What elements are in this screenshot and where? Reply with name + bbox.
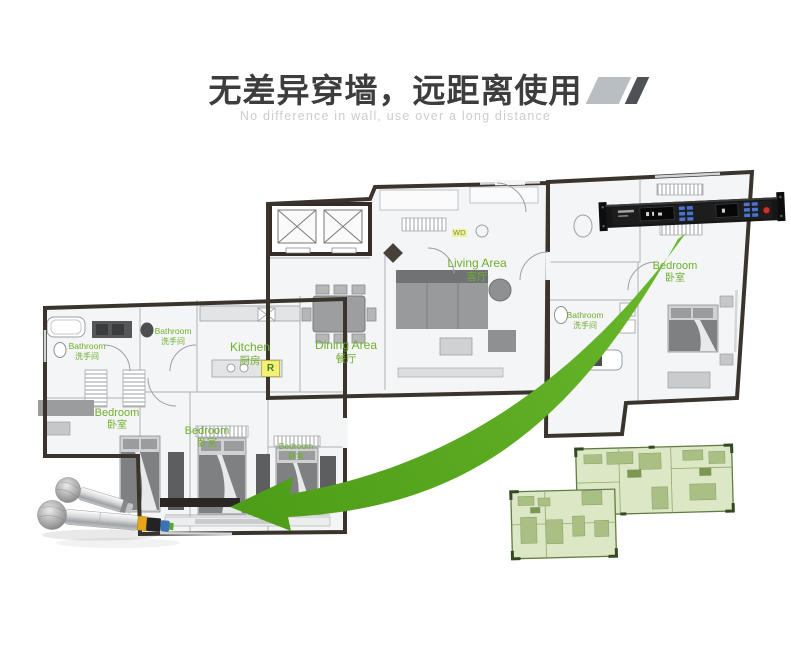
page-subtitle: No difference in wall, use over a long d… (0, 109, 791, 123)
receiver-power-led (763, 207, 770, 214)
receiver-display-a (640, 206, 675, 221)
mic-shadow (56, 538, 180, 548)
receiver-display-b (716, 204, 739, 218)
handheld-microphones (36, 474, 180, 548)
page-title: 无差异穿墙，远距离使用 (0, 64, 791, 112)
wireless-receiver (598, 192, 785, 231)
marketing-page: Living Area 客厅 Dining Area 餐厅 Kitchen 厨房… (0, 0, 791, 655)
